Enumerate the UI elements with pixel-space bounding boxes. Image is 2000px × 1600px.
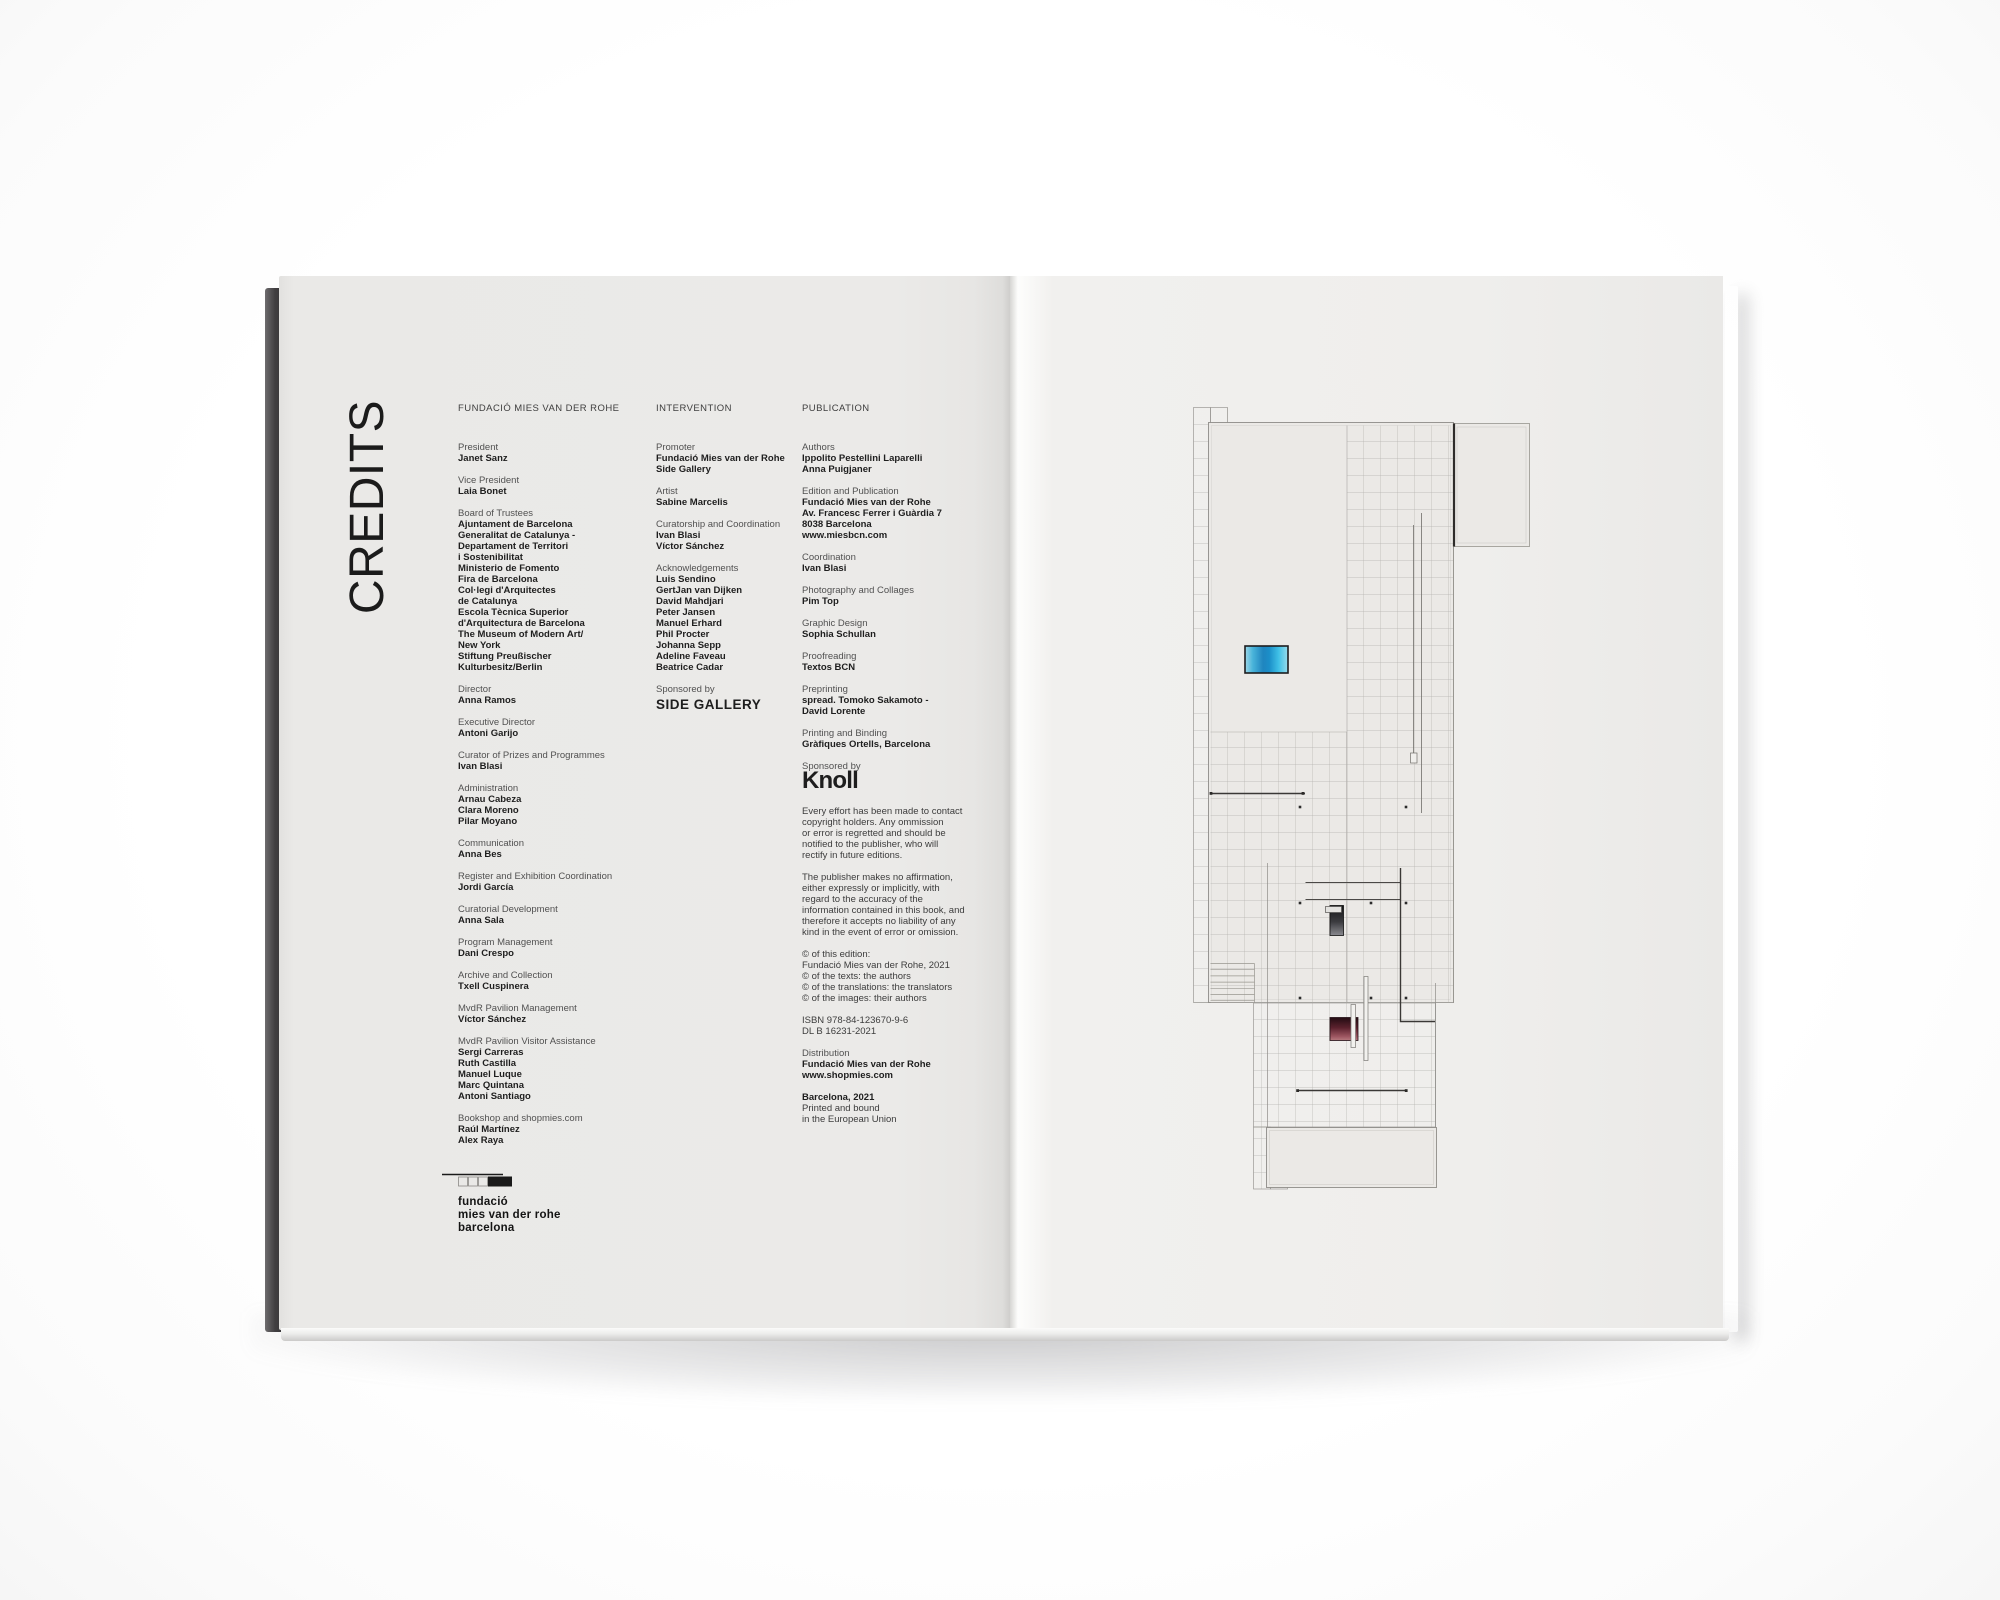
credit-name: Fundació Mies van der Rohe — [802, 497, 988, 508]
credit-section: Printing and BindingGràfiques Ortells, B… — [802, 728, 988, 750]
photo-backdrop: CREDITS FUNDACIÓ MIES VAN DER ROHEPresid… — [0, 0, 2000, 1600]
credit-name: Antoni Santiago — [458, 1091, 644, 1102]
credit-name: Anna Sala — [458, 915, 644, 926]
credit-role-label: Curator of Prizes and Programmes — [458, 750, 644, 761]
credit-section: Curator of Prizes and ProgrammesIvan Bla… — [458, 750, 644, 772]
credit-role-label: Authors — [802, 442, 988, 453]
credit-name: Sergi Carreras — [458, 1047, 644, 1058]
credit-text-line: regard to the accuracy of the — [802, 894, 988, 905]
credit-role-label: Director — [458, 684, 644, 695]
credit-text-line: ISBN 978-84-123670-9-6 — [802, 1015, 988, 1026]
credit-name: Víctor Sánchez — [458, 1014, 644, 1025]
credit-role-label: Distribution — [802, 1048, 988, 1059]
credits-column-publication: PUBLICATIONAuthorsIppolito Pestellini La… — [802, 403, 988, 1136]
credit-role-label: Archive and Collection — [458, 970, 644, 981]
credit-name: Jordi García — [458, 882, 644, 893]
credit-role-label: Executive Director — [458, 717, 644, 728]
credit-name: Anna Bes — [458, 849, 644, 860]
credit-section: DistributionFundació Mies van der Roheww… — [802, 1048, 988, 1081]
credit-section: AdministrationArnau CabezaClara MorenoPi… — [458, 783, 644, 827]
credit-name: Ivan Blasi — [458, 761, 644, 772]
credit-role-label: Curatorial Development — [458, 904, 644, 915]
credit-text-line: kind in the event of error or omission. — [802, 927, 988, 938]
credit-section: Executive DirectorAntoni Garijo — [458, 717, 644, 739]
credit-text-line: Printed and bound — [802, 1103, 988, 1114]
credit-name: Fundació Mies van der Rohe — [802, 1059, 988, 1070]
credit-text-line: DL B 16231-2021 — [802, 1026, 988, 1037]
credit-text-line: therefore it accepts no liability of any — [802, 916, 988, 927]
credit-name: Sophia Schullan — [802, 629, 988, 640]
credit-section: Curatorial DevelopmentAnna Sala — [458, 904, 644, 926]
credit-name: www.shopmies.com — [802, 1070, 988, 1081]
credit-name: Ajuntament de Barcelona — [458, 519, 644, 530]
logo-wordmark: fundació mies van der rohe barcelona — [458, 1196, 562, 1235]
credit-name: Generalitat de Catalunya - — [458, 530, 644, 541]
credit-section: Barcelona, 2021Printed and boundin the E… — [802, 1092, 988, 1125]
page-block-fore-edge — [281, 1328, 1729, 1341]
credit-section: Bookshop and shopmies.comRaúl MartínezAl… — [458, 1113, 644, 1146]
credit-section: Every effort has been made to contactcop… — [802, 806, 988, 861]
credit-section: Graphic DesignSophia Schullan — [802, 618, 988, 640]
credit-name: Arnau Cabeza — [458, 794, 644, 805]
credit-text-line: © of the texts: the authors — [802, 971, 988, 982]
credit-name: Textos BCN — [802, 662, 988, 673]
credit-role-label: Program Management — [458, 937, 644, 948]
column-header: FUNDACIÓ MIES VAN DER ROHE — [458, 403, 644, 414]
credit-section: Board of TrusteesAjuntament de Barcelona… — [458, 508, 644, 673]
credit-section: DirectorAnna Ramos — [458, 684, 644, 706]
credit-text-line: copyright holders. Any ommission — [802, 817, 988, 828]
credit-role-label: Administration — [458, 783, 644, 794]
credit-text-line: notified to the publisher, who will — [802, 839, 988, 850]
plan-pool — [1245, 646, 1288, 673]
credit-section: Program ManagementDani Crespo — [458, 937, 644, 959]
credit-role-label: Proofreading — [802, 651, 988, 662]
credit-section: Photography and CollagesPim Top — [802, 585, 988, 607]
credit-role-label: Photography and Collages — [802, 585, 988, 596]
book-cover-right-edge — [1725, 286, 1738, 1332]
credit-name: Barcelona, 2021 — [802, 1092, 988, 1103]
credit-name: Txell Cuspinera — [458, 981, 644, 992]
credit-name: Marc Quintana — [458, 1080, 644, 1091]
plan-thin-wall — [1364, 977, 1368, 1061]
credit-name: Av. Francesc Ferrer i Guàrdia 7 — [802, 508, 988, 519]
credit-name: Pilar Moyano — [458, 816, 644, 827]
credit-role-label: Edition and Publication — [802, 486, 988, 497]
credit-name: Col·legi d'Arquitectes — [458, 585, 644, 596]
credit-name: Anna Ramos — [458, 695, 644, 706]
credit-section: Vice PresidentLaia Bonet — [458, 475, 644, 497]
column-header: PUBLICATION — [802, 403, 988, 414]
credit-name: Fira de Barcelona — [458, 574, 644, 585]
credit-name: Alex Raya — [458, 1135, 644, 1146]
credit-section: CoordinationIvan Blasi — [802, 552, 988, 574]
credit-section: PresidentJanet Sanz — [458, 442, 644, 464]
credit-name: Dani Crespo — [458, 948, 644, 959]
credit-name: Raúl Martínez — [458, 1124, 644, 1135]
credit-name: Ruth Castilla — [458, 1058, 644, 1069]
credit-text-line: © of the images: their authors — [802, 993, 988, 1004]
credit-name: Gràfiques Ortells, Barcelona — [802, 739, 988, 750]
credit-name: Departament de Territori — [458, 541, 644, 552]
credit-role-label: Vice President — [458, 475, 644, 486]
credit-name: Antoni Garijo — [458, 728, 644, 739]
plan-annex — [1454, 424, 1530, 547]
credit-name: Laia Bonet — [458, 486, 644, 497]
credit-section: Edition and PublicationFundació Mies van… — [802, 486, 988, 541]
credit-section: Register and Exhibition CoordinationJord… — [458, 871, 644, 893]
credit-name: d'Arquitectura de Barcelona — [458, 618, 644, 629]
credit-name: Knoll — [802, 775, 988, 786]
credit-text-line: The publisher makes no affirmation, — [802, 872, 988, 883]
page-title: CREDITS — [336, 377, 400, 637]
barcelona-pavilion-floor-plan — [1191, 398, 1533, 1210]
credit-role-label: Preprinting — [802, 684, 988, 695]
fundacio-mies-logo: fundació mies van der rohe barcelona — [442, 1173, 562, 1235]
credit-name: The Museum of Modern Art/ — [458, 629, 644, 640]
credit-section: AuthorsIppolito Pestellini LaparelliAnna… — [802, 442, 988, 475]
credit-name: Ministerio de Fomento — [458, 563, 644, 574]
credit-text-line: © of the translations: the translators — [802, 982, 988, 993]
credit-name: Pim Top — [802, 596, 988, 607]
credit-role-label: MvdR Pavilion Visitor Assistance — [458, 1036, 644, 1047]
credit-name: New York — [458, 640, 644, 651]
credit-text-line: Every effort has been made to contact — [802, 806, 988, 817]
credit-name: Clara Moreno — [458, 805, 644, 816]
credit-section: ISBN 978-84-123670-9-6DL B 16231-2021 — [802, 1015, 988, 1037]
credit-name: de Catalunya — [458, 596, 644, 607]
credit-role-label: Graphic Design — [802, 618, 988, 629]
credit-text-line: Fundació Mies van der Rohe, 2021 — [802, 960, 988, 971]
credit-name: i Sostenibilitat — [458, 552, 644, 563]
credit-role-label: Register and Exhibition Coordination — [458, 871, 644, 882]
credit-name: Ippolito Pestellini Laparelli — [802, 453, 988, 464]
credit-name: www.miesbcn.com — [802, 530, 988, 541]
credit-role-label: Printing and Binding — [802, 728, 988, 739]
fundacio-logo-mark — [442, 1173, 514, 1188]
credit-text-line: © of this edition: — [802, 949, 988, 960]
credit-text-line: rectify in future editions. — [802, 850, 988, 861]
credit-section: MvdR Pavilion Visitor AssistanceSergi Ca… — [458, 1036, 644, 1102]
credit-section: Preprintingspread. Tomoko Sakamoto -Davi… — [802, 684, 988, 717]
credit-text-line: either expressly or implicitly, with — [802, 883, 988, 894]
credit-text-line: or error is regretted and should be — [802, 828, 988, 839]
credit-section: MvdR Pavilion ManagementVíctor Sánchez — [458, 1003, 644, 1025]
credit-role-label: Bookshop and shopmies.com — [458, 1113, 644, 1124]
credit-role-label: Coordination — [802, 552, 988, 563]
credit-section: ProofreadingTextos BCN — [802, 651, 988, 673]
credit-section: © of this edition:Fundació Mies van der … — [802, 949, 988, 1004]
credit-text-line: information contained in this book, and — [802, 905, 988, 916]
credit-role-label: President — [458, 442, 644, 453]
credit-name: spread. Tomoko Sakamoto - — [802, 695, 988, 706]
credit-name: Ivan Blasi — [802, 563, 988, 574]
credit-section: The publisher makes no affirmation,eithe… — [802, 872, 988, 938]
credits-column-fundacio: FUNDACIÓ MIES VAN DER ROHEPresidentJanet… — [458, 403, 644, 1157]
credit-text-line: in the European Union — [802, 1114, 988, 1125]
credit-role-label: Board of Trustees — [458, 508, 644, 519]
credit-name: Kulturbesitz/Berlin — [458, 662, 644, 673]
credit-role-label: Communication — [458, 838, 644, 849]
credit-name: David Lorente — [802, 706, 988, 717]
credit-name: Janet Sanz — [458, 453, 644, 464]
credit-name: Escola Tècnica Superior — [458, 607, 644, 618]
credit-role-label: MvdR Pavilion Management — [458, 1003, 644, 1014]
credit-section: Archive and CollectionTxell Cuspinera — [458, 970, 644, 992]
credit-name: Stiftung Preußischer — [458, 651, 644, 662]
credit-name: Manuel Luque — [458, 1069, 644, 1080]
credit-name: Anna Puigjaner — [802, 464, 988, 475]
credit-name: 8038 Barcelona — [802, 519, 988, 530]
plan-large-pool — [1267, 1128, 1437, 1188]
credit-section: Sponsored byKnoll — [802, 761, 988, 786]
credit-section: CommunicationAnna Bes — [458, 838, 644, 860]
